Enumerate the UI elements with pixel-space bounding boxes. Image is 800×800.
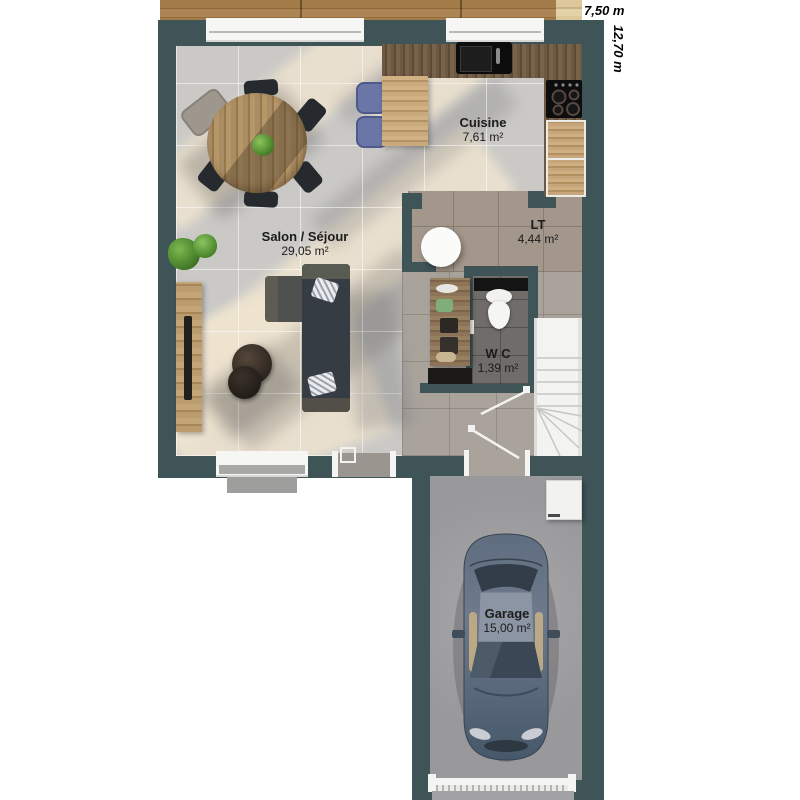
window-top-right [446,18,544,42]
room-label-cuisine: Cuisine 7,61 m² [460,116,507,144]
room-name: LT [518,218,559,233]
room-name: W C [478,347,519,362]
wall [402,193,412,272]
window-top-left [206,18,364,42]
window-frame-line [219,465,305,474]
window-exterior-sill [227,477,297,493]
kitchen-sink [456,42,512,74]
garage-door-post [568,774,576,792]
dimension-width-label: 7,50 m [584,3,624,18]
garage-door-jamb [464,450,469,476]
room-area: 7,61 m² [460,131,507,145]
car [450,526,562,768]
table-plant [252,134,274,156]
window-frame-line [449,31,541,33]
sofa-armrest [302,398,350,412]
dark-cabinet [428,368,472,384]
tv [184,316,192,400]
entry-door-leaf [340,447,356,463]
vanity-tray [440,318,458,333]
room-name: Salon / Séjour [262,230,349,245]
kitchen-cabinet [546,158,586,197]
room-label-lt: LT 4,44 m² [518,218,559,246]
garage-door-opening [468,450,526,476]
bar-counter [382,76,428,146]
vanity-dish [436,284,458,293]
window-bottom [216,451,308,477]
dimension-height-label: 12,70 m [611,25,626,73]
room-name: Garage [483,607,530,622]
cooktop [546,80,582,118]
sofa-backrest [302,264,350,279]
sofa-armrest [265,276,278,322]
garage-sectional-door [432,778,572,791]
plant [193,234,217,258]
appliance-handle [548,514,560,517]
vanity-towel [436,352,456,362]
room-name: Cuisine [460,116,507,131]
floor-plan: Cuisine 7,61 m² Salon / Séjour 29,05 m² … [0,0,800,800]
garage-appliance [546,480,582,520]
vanity-plant [436,299,453,312]
wc-wall-bottom [420,383,538,393]
kitchen-cabinet [546,120,586,160]
coffee-table [228,366,261,399]
sink-basin [460,46,492,72]
room-area: 15,00 m² [483,622,530,636]
sofa-chaise [265,276,307,322]
sink-faucet [496,48,500,64]
room-label-salon: Salon / Séjour 29,05 m² [262,230,349,258]
garage-door-post [428,774,436,792]
room-label-wc: W C 1,39 m² [478,347,519,375]
room-area: 4,44 m² [518,233,559,247]
garage-door-jamb [525,450,530,476]
entry-door-jamb [390,451,396,477]
room-area: 1,39 m² [478,362,519,376]
staircase [534,318,582,456]
driveway [432,791,574,800]
water-heater [421,227,461,267]
window-frame-line [209,31,361,33]
room-area: 29,05 m² [262,245,349,259]
room-label-garage: Garage 15,00 m² [483,607,530,635]
